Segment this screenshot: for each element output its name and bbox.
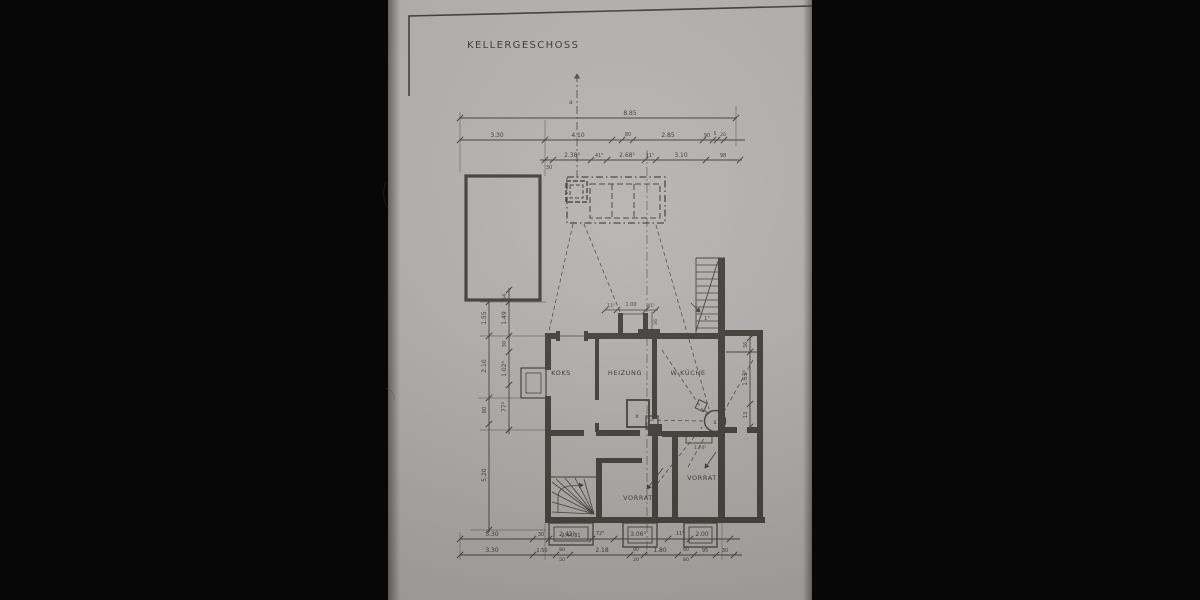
photographed-floorplan: KELLERGESCHOSS a 8.85: [0, 0, 1200, 600]
top-dimension-chain: 8.85 3.30 4.10 80 2.85 90 5 20 30 2.38⁵ …: [457, 106, 745, 176]
dim: 72⁵: [596, 531, 604, 537]
section-mark-label: a: [569, 99, 573, 106]
dim: 90: [704, 133, 710, 139]
dim: 20: [720, 132, 726, 138]
dim: 1.55: [481, 311, 488, 325]
room-label-wkueche: W-KÜCHE: [670, 368, 705, 377]
dim-top-total: 8.85: [623, 110, 637, 117]
chimney-glyph: s: [713, 419, 716, 426]
dim: 2.00: [695, 531, 709, 538]
dim: 3.10: [674, 152, 688, 159]
dim: 11⁵: [607, 303, 615, 309]
floorplan-drawing: KELLERGESCHOSS a 8.85: [0, 0, 1200, 600]
dim: 11⁵: [646, 153, 654, 159]
dim: 80: [633, 547, 639, 553]
dim: 30: [546, 165, 552, 171]
dim: 80: [683, 557, 689, 563]
dim: 80: [625, 132, 631, 138]
dim: 2.38⁵: [564, 152, 580, 159]
dim: 1.49: [501, 311, 508, 325]
dim: 3.06⁵: [630, 531, 646, 538]
dim: 64: [502, 294, 508, 300]
dim: 2.10: [481, 359, 488, 373]
dim: 3.30: [485, 547, 499, 554]
door-note-label: 1°: [704, 316, 710, 322]
left-dimension-chain: 1.55 2.10 80 5.20 64 1.49 30 1.02⁵ 77⁵: [470, 287, 546, 533]
dim: 1.00: [625, 302, 636, 308]
dim: 11⁵: [676, 531, 684, 537]
winder-stair: [552, 478, 594, 514]
page-title: KELLERGESCHOSS: [467, 40, 579, 51]
projection-outline: [566, 177, 665, 223]
dim: 36: [743, 342, 749, 348]
dim: 1.02⁵: [501, 361, 508, 377]
left-room-outline: [466, 176, 540, 300]
dim: 30: [722, 548, 728, 554]
dim: 2.68⁵: [619, 152, 635, 159]
dim: 1.63⁵: [742, 370, 749, 386]
section-lines: a: [569, 74, 647, 556]
dim: 98: [720, 153, 726, 159]
dim: 1.80: [653, 547, 667, 554]
dim: 2.85: [661, 132, 675, 139]
room-label-heizung: HEIZUNG: [608, 369, 642, 377]
room-label-vorrat-center: VORRAT: [623, 494, 653, 502]
dim: 60: [683, 547, 689, 553]
right-dimension-chain: 36 1.63⁵ 13: [742, 335, 753, 430]
dim-ticks-left: [486, 287, 512, 533]
dim: 3.30: [485, 531, 499, 538]
dim: 5.20: [481, 468, 488, 482]
dim: 41⁵: [647, 303, 655, 309]
dim: 77⁵: [501, 401, 508, 412]
dim: 30: [538, 532, 544, 538]
opening-dimensions: 11⁵ 1.00 41⁵ 36: [602, 302, 659, 332]
dim: 95: [702, 548, 708, 554]
dim: 41⁵: [595, 153, 603, 159]
room-label-koks: KOKS: [551, 369, 571, 377]
dim: 30: [502, 341, 508, 347]
dim: 2.42⁵: [559, 531, 575, 538]
dim: 4.10: [571, 132, 585, 139]
dim: 3.30: [490, 132, 504, 139]
dim: 5: [714, 131, 717, 137]
room-label-vorrat-right: VORRAT: [687, 474, 717, 482]
dim: 20: [633, 557, 639, 563]
dim: 1.50: [536, 548, 547, 554]
dim: 80: [482, 407, 488, 413]
dim: 2.18: [595, 547, 609, 554]
boiler-glyph: x: [635, 413, 639, 420]
dim: 80: [559, 547, 565, 553]
dim: 13: [743, 412, 749, 418]
dim: 36: [653, 319, 659, 325]
dim: 50: [559, 557, 565, 563]
